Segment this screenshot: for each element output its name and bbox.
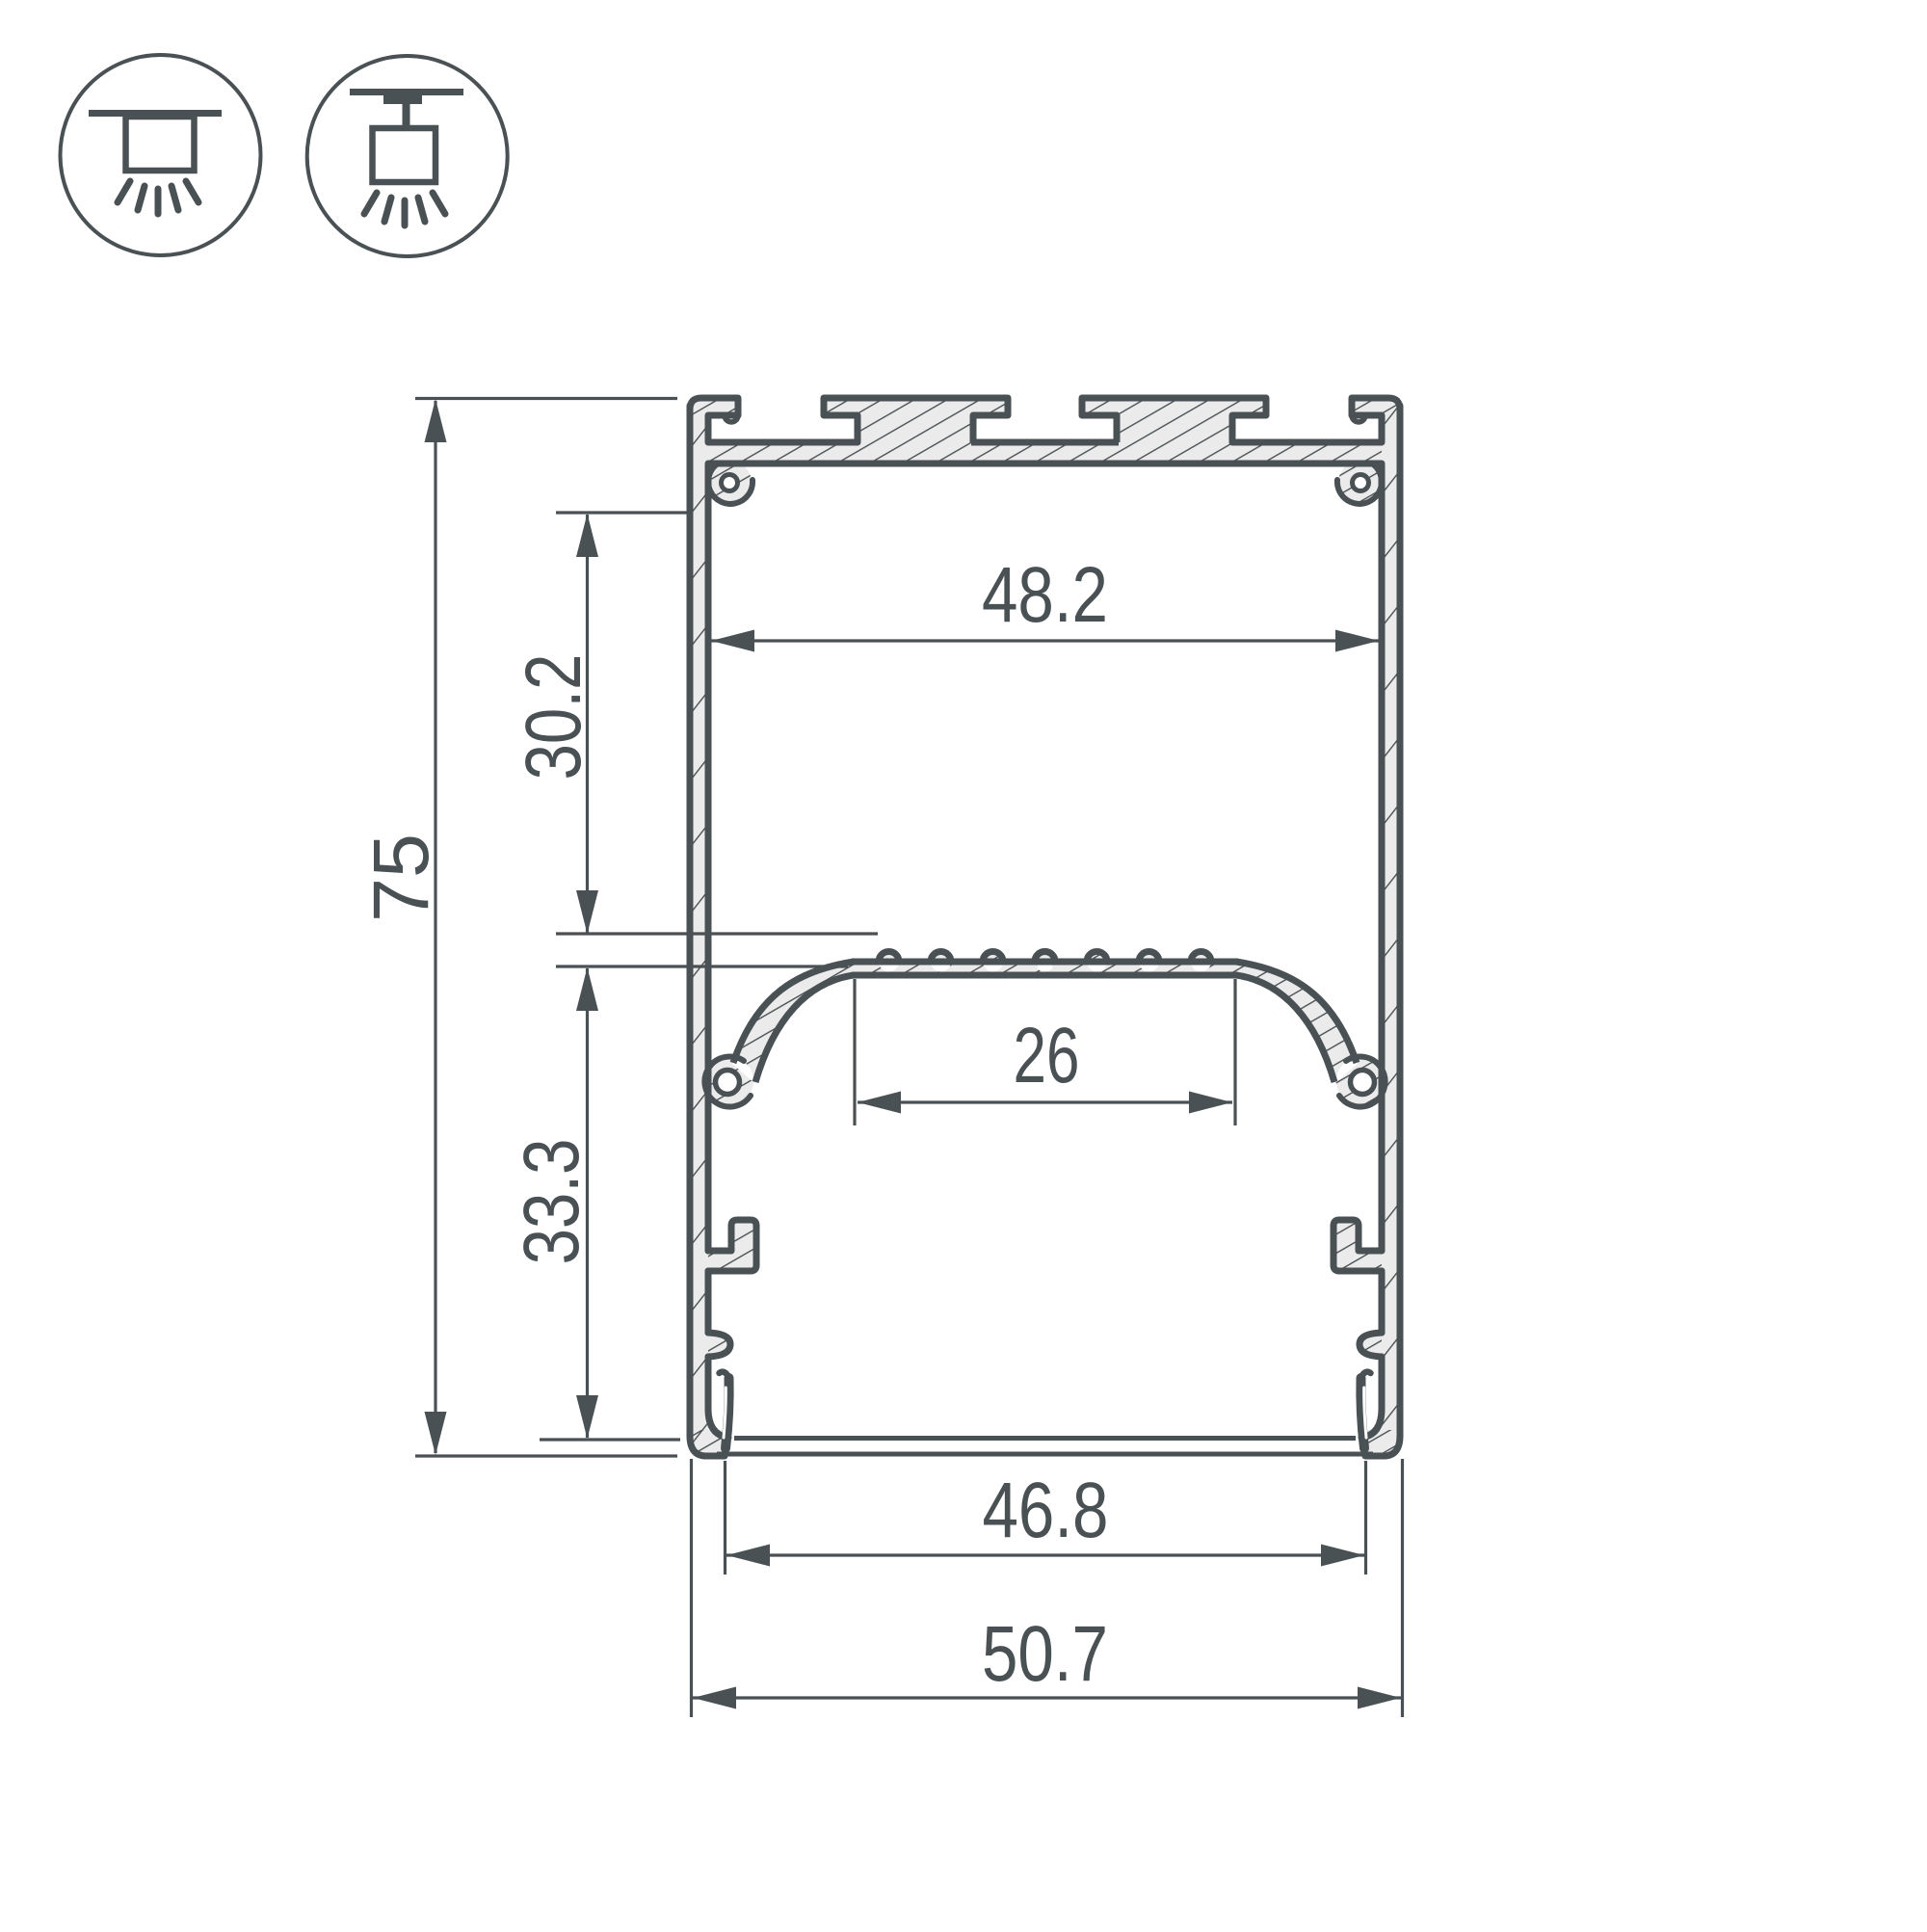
svg-text:26: 26	[1014, 1012, 1080, 1099]
svg-text:75: 75	[357, 834, 445, 922]
svg-text:48.2: 48.2	[982, 551, 1108, 639]
svg-text:50.7: 50.7	[982, 1610, 1108, 1698]
svg-text:33.3: 33.3	[508, 1139, 595, 1265]
svg-text:30.2: 30.2	[510, 654, 597, 781]
svg-text:46.8: 46.8	[983, 1467, 1109, 1554]
